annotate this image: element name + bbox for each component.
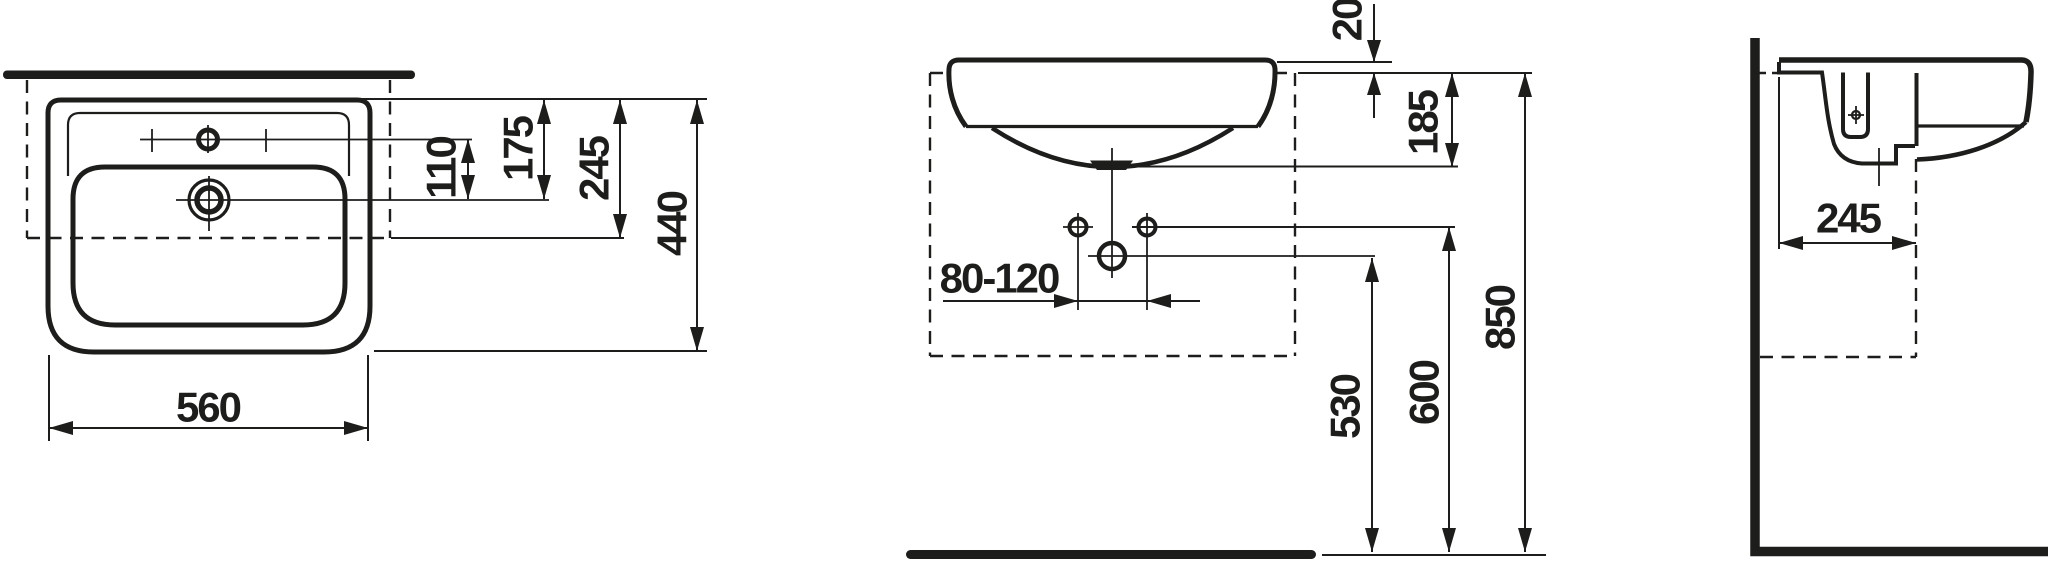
overflow-channel-section bbox=[1843, 73, 1868, 138]
arrow-left-icon bbox=[1147, 294, 1171, 308]
arrow-right-icon bbox=[1892, 236, 1916, 250]
bowl-underside-curve-side bbox=[1917, 122, 2026, 160]
arrow-up-icon bbox=[1445, 73, 1459, 97]
arrow-up-icon bbox=[1367, 73, 1381, 95]
dim-label-850: 850 bbox=[1477, 285, 1524, 350]
front-view: 20 185 80-120 530 600 850 bbox=[906, 0, 1546, 559]
floor-line-front bbox=[906, 550, 1316, 559]
arrow-right-icon bbox=[344, 421, 368, 435]
arrow-down-icon bbox=[613, 214, 627, 238]
arrow-down-icon bbox=[1445, 143, 1459, 167]
dim-label-20: 20 bbox=[1324, 0, 1371, 41]
dim-label-440: 440 bbox=[649, 191, 696, 256]
dim-label-175: 175 bbox=[495, 115, 542, 181]
technical-drawing-canvas: 110 175 245 440 560 bbox=[0, 0, 2048, 562]
dim-label-245-side: 245 bbox=[1816, 195, 1882, 242]
dim-label-110: 110 bbox=[418, 136, 465, 198]
washbasin-dimension-drawing: 110 175 245 440 560 bbox=[0, 0, 2048, 562]
dim-label-80-120: 80-120 bbox=[940, 255, 1059, 302]
arrow-down-icon bbox=[1365, 528, 1379, 552]
arrow-up-icon bbox=[690, 100, 704, 124]
arrow-left-icon bbox=[1779, 236, 1803, 250]
dim-label-530: 530 bbox=[1322, 374, 1369, 439]
bowl-section-outline-side bbox=[1779, 62, 1915, 164]
basin-body-fill bbox=[949, 60, 1275, 127]
arrow-down-icon bbox=[1442, 528, 1456, 552]
arrow-up-icon bbox=[1442, 227, 1456, 251]
wall-and-floor-line-side bbox=[1755, 38, 2048, 552]
rim-profile-side bbox=[1779, 60, 2031, 122]
dim-label-245-plan: 245 bbox=[571, 135, 618, 201]
dim-label-560: 560 bbox=[176, 384, 241, 431]
arrow-left-icon bbox=[49, 421, 73, 435]
dim-label-185: 185 bbox=[1400, 89, 1447, 155]
side-view: 245 bbox=[1755, 38, 2048, 552]
arrow-down-icon bbox=[1367, 40, 1381, 62]
arrow-down-icon bbox=[1518, 528, 1532, 552]
wall-line-plan bbox=[3, 71, 415, 80]
arrow-up-icon bbox=[1365, 258, 1379, 282]
arrow-down-icon bbox=[690, 327, 704, 351]
dim-label-600: 600 bbox=[1401, 360, 1448, 425]
plan-view: 110 175 245 440 560 bbox=[3, 71, 707, 442]
arrow-up-icon bbox=[613, 100, 627, 124]
arrow-up-icon bbox=[1518, 73, 1532, 97]
